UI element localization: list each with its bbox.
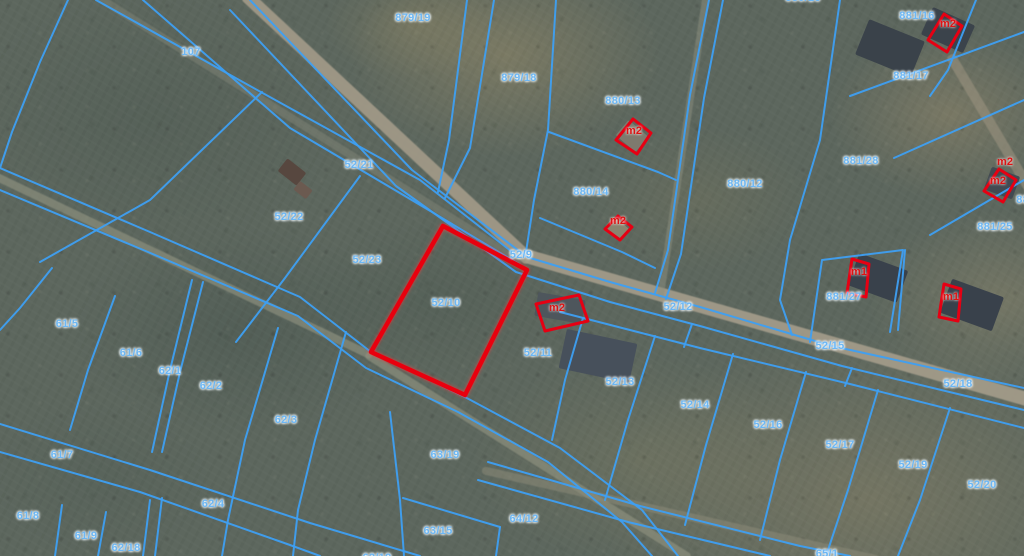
parcel-label-52-18: 52/18 (943, 378, 972, 390)
building-label-m1: m1 (851, 266, 867, 278)
parcel-label-61-9: 61/9 (75, 530, 98, 542)
parcel-label-62-3: 62/3 (275, 414, 298, 426)
parcel-label-52-23: 52/23 (352, 254, 381, 266)
building-label-m2: m2 (997, 156, 1013, 168)
parcel-label-61-5: 61/5 (56, 318, 79, 330)
parcel-label-880-16: 880/16 (785, 0, 820, 4)
parcel-label-52-11: 52/11 (524, 347, 552, 359)
parcel-label-52-17: 52/17 (825, 439, 854, 451)
parcel-label-62-1: 62/1 (159, 365, 182, 377)
parcel-label-52-13: 52/13 (605, 376, 634, 388)
parcel-label-61-8: 61/8 (17, 510, 40, 522)
parcel-label-880-14: 880/14 (573, 186, 608, 198)
building-label-m2: m2 (940, 18, 956, 30)
building-label-m2: m2 (990, 175, 1006, 187)
parcel-label-881-17: 881/17 (893, 70, 928, 82)
building-label-m1: m1 (943, 291, 959, 303)
parcel-label-52-15: 52/15 (815, 340, 844, 352)
parcel-label-52-12: 52/12 (663, 301, 692, 313)
parcel-label-65-1: 65/1 (816, 548, 839, 556)
building-label-m2: m2 (626, 125, 642, 137)
parcel-label-64-12: 64/12 (509, 513, 538, 525)
parcel-label-52-10: 52/10 (431, 297, 460, 309)
parcel-label-880-12: 880/12 (727, 178, 762, 190)
parcel-label-879-18: 879/18 (501, 72, 536, 84)
parcel-label-52-22: 52/22 (274, 211, 303, 223)
parcel-label-881-25: 881/25 (977, 221, 1012, 233)
parcel-label-62-19: 62/19 (362, 552, 391, 556)
parcel-label-881-16: 881/16 (899, 10, 934, 22)
parcel-label-61-6: 61/6 (120, 347, 143, 359)
parcel-label-52-16: 52/16 (753, 419, 782, 431)
parcel-label-881-27: 881/27 (826, 291, 861, 303)
parcel-label-63-19: 63/19 (430, 449, 459, 461)
parcel-label-880-13: 880/13 (605, 95, 640, 107)
parcel-label-881-28: 881/28 (843, 155, 878, 167)
parcel-label-62-4: 62/4 (202, 498, 225, 510)
parcel-label-61-7: 61/7 (51, 449, 74, 461)
parcel-label-52-19: 52/19 (898, 459, 927, 471)
parcel-label-62-2: 62/2 (200, 380, 223, 392)
parcel-label-107: 107 (181, 46, 200, 58)
parcel-label-52-14: 52/14 (680, 399, 709, 411)
parcel-label-879-19: 879/19 (395, 12, 430, 24)
parcel-label-52-9: 52/9 (510, 249, 533, 261)
parcel-label-881-26: 881/26 (1016, 194, 1024, 206)
parcel-label-52-21: 52/21 (344, 159, 373, 171)
building-label-m2: m2 (610, 215, 626, 227)
map-viewport[interactable]: 879/19879/18107880/1652/2152/2252/23880/… (0, 0, 1024, 556)
building-label-m2: m2 (549, 302, 565, 314)
parcel-label-63-15: 63/15 (423, 525, 452, 537)
labels-layer: 879/19879/18107880/1652/2152/2252/23880/… (0, 0, 1024, 556)
parcel-label-62-18: 62/18 (111, 542, 140, 554)
parcel-label-52-20: 52/20 (967, 479, 996, 491)
